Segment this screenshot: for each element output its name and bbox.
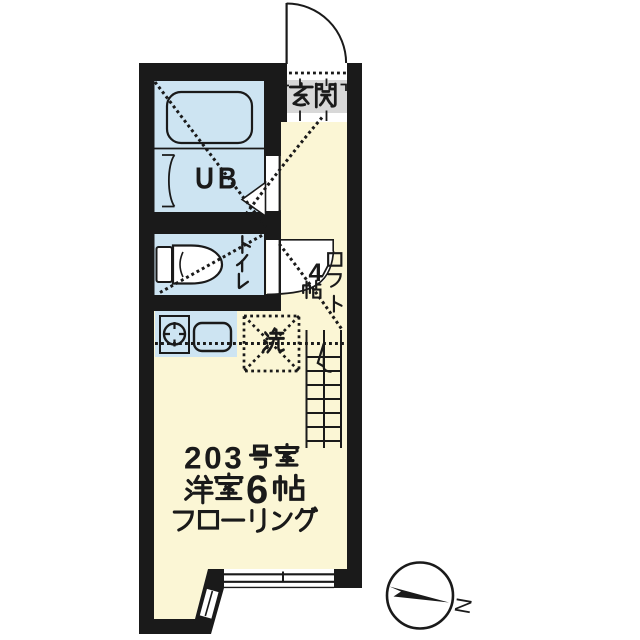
svg-text:6: 6 [246, 468, 268, 512]
svg-text:203: 203 [184, 439, 244, 475]
svg-text:UB: UB [195, 162, 241, 196]
